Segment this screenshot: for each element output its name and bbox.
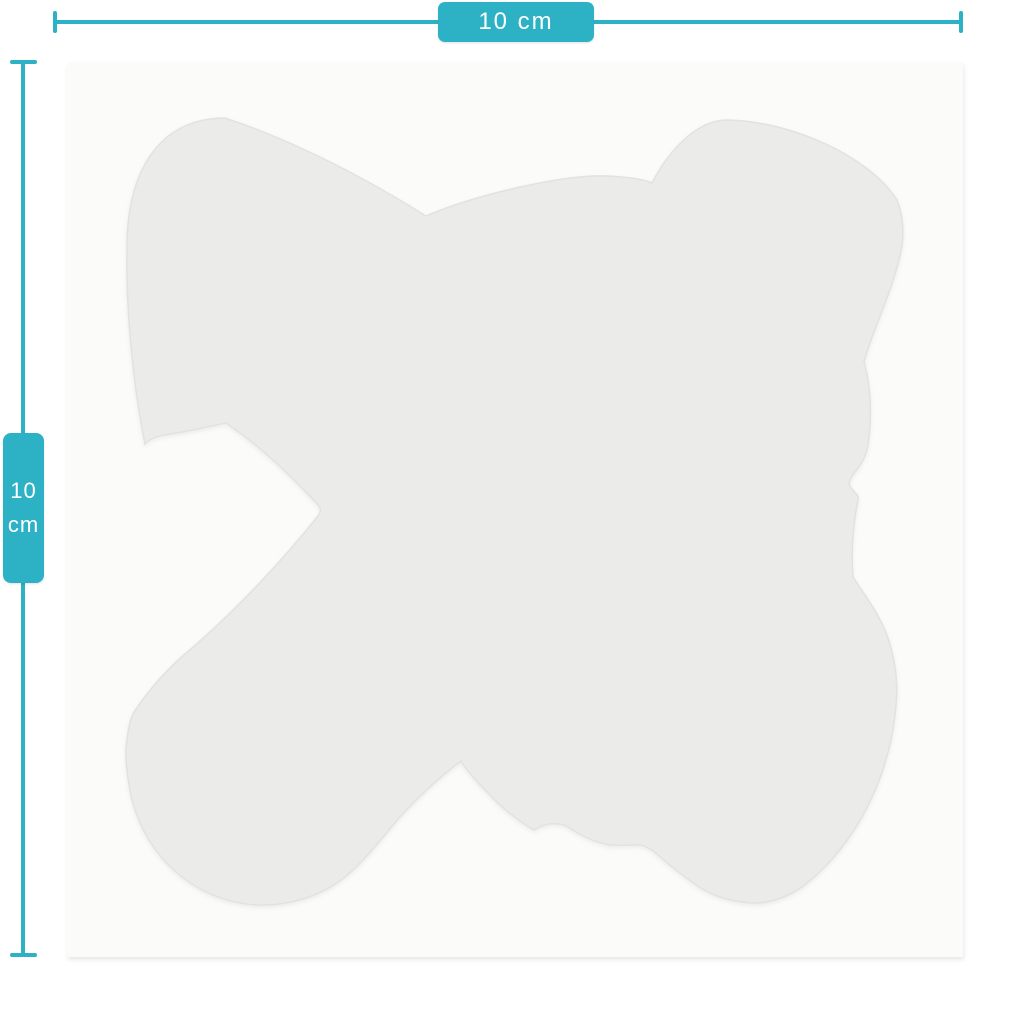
sticker-x-shape-path: [126, 118, 903, 905]
die-cut-sticker-shape: [0, 0, 1024, 1024]
width-dimension-left-tick: [53, 11, 57, 33]
width-dimension-right-tick: [959, 11, 963, 33]
width-dimension-badge: 10 cm: [438, 2, 594, 42]
height-dimension-badge: 10 cm: [3, 433, 44, 583]
width-dimension-label: 10 cm: [478, 10, 553, 34]
height-dimension-top-tick: [10, 60, 37, 64]
height-dimension-value: 10: [10, 480, 36, 502]
sticker-dimension-mockup: 10 cm 10 cm: [0, 0, 1024, 1024]
height-dimension-unit: cm: [8, 514, 39, 536]
height-dimension-bottom-tick: [10, 953, 37, 957]
